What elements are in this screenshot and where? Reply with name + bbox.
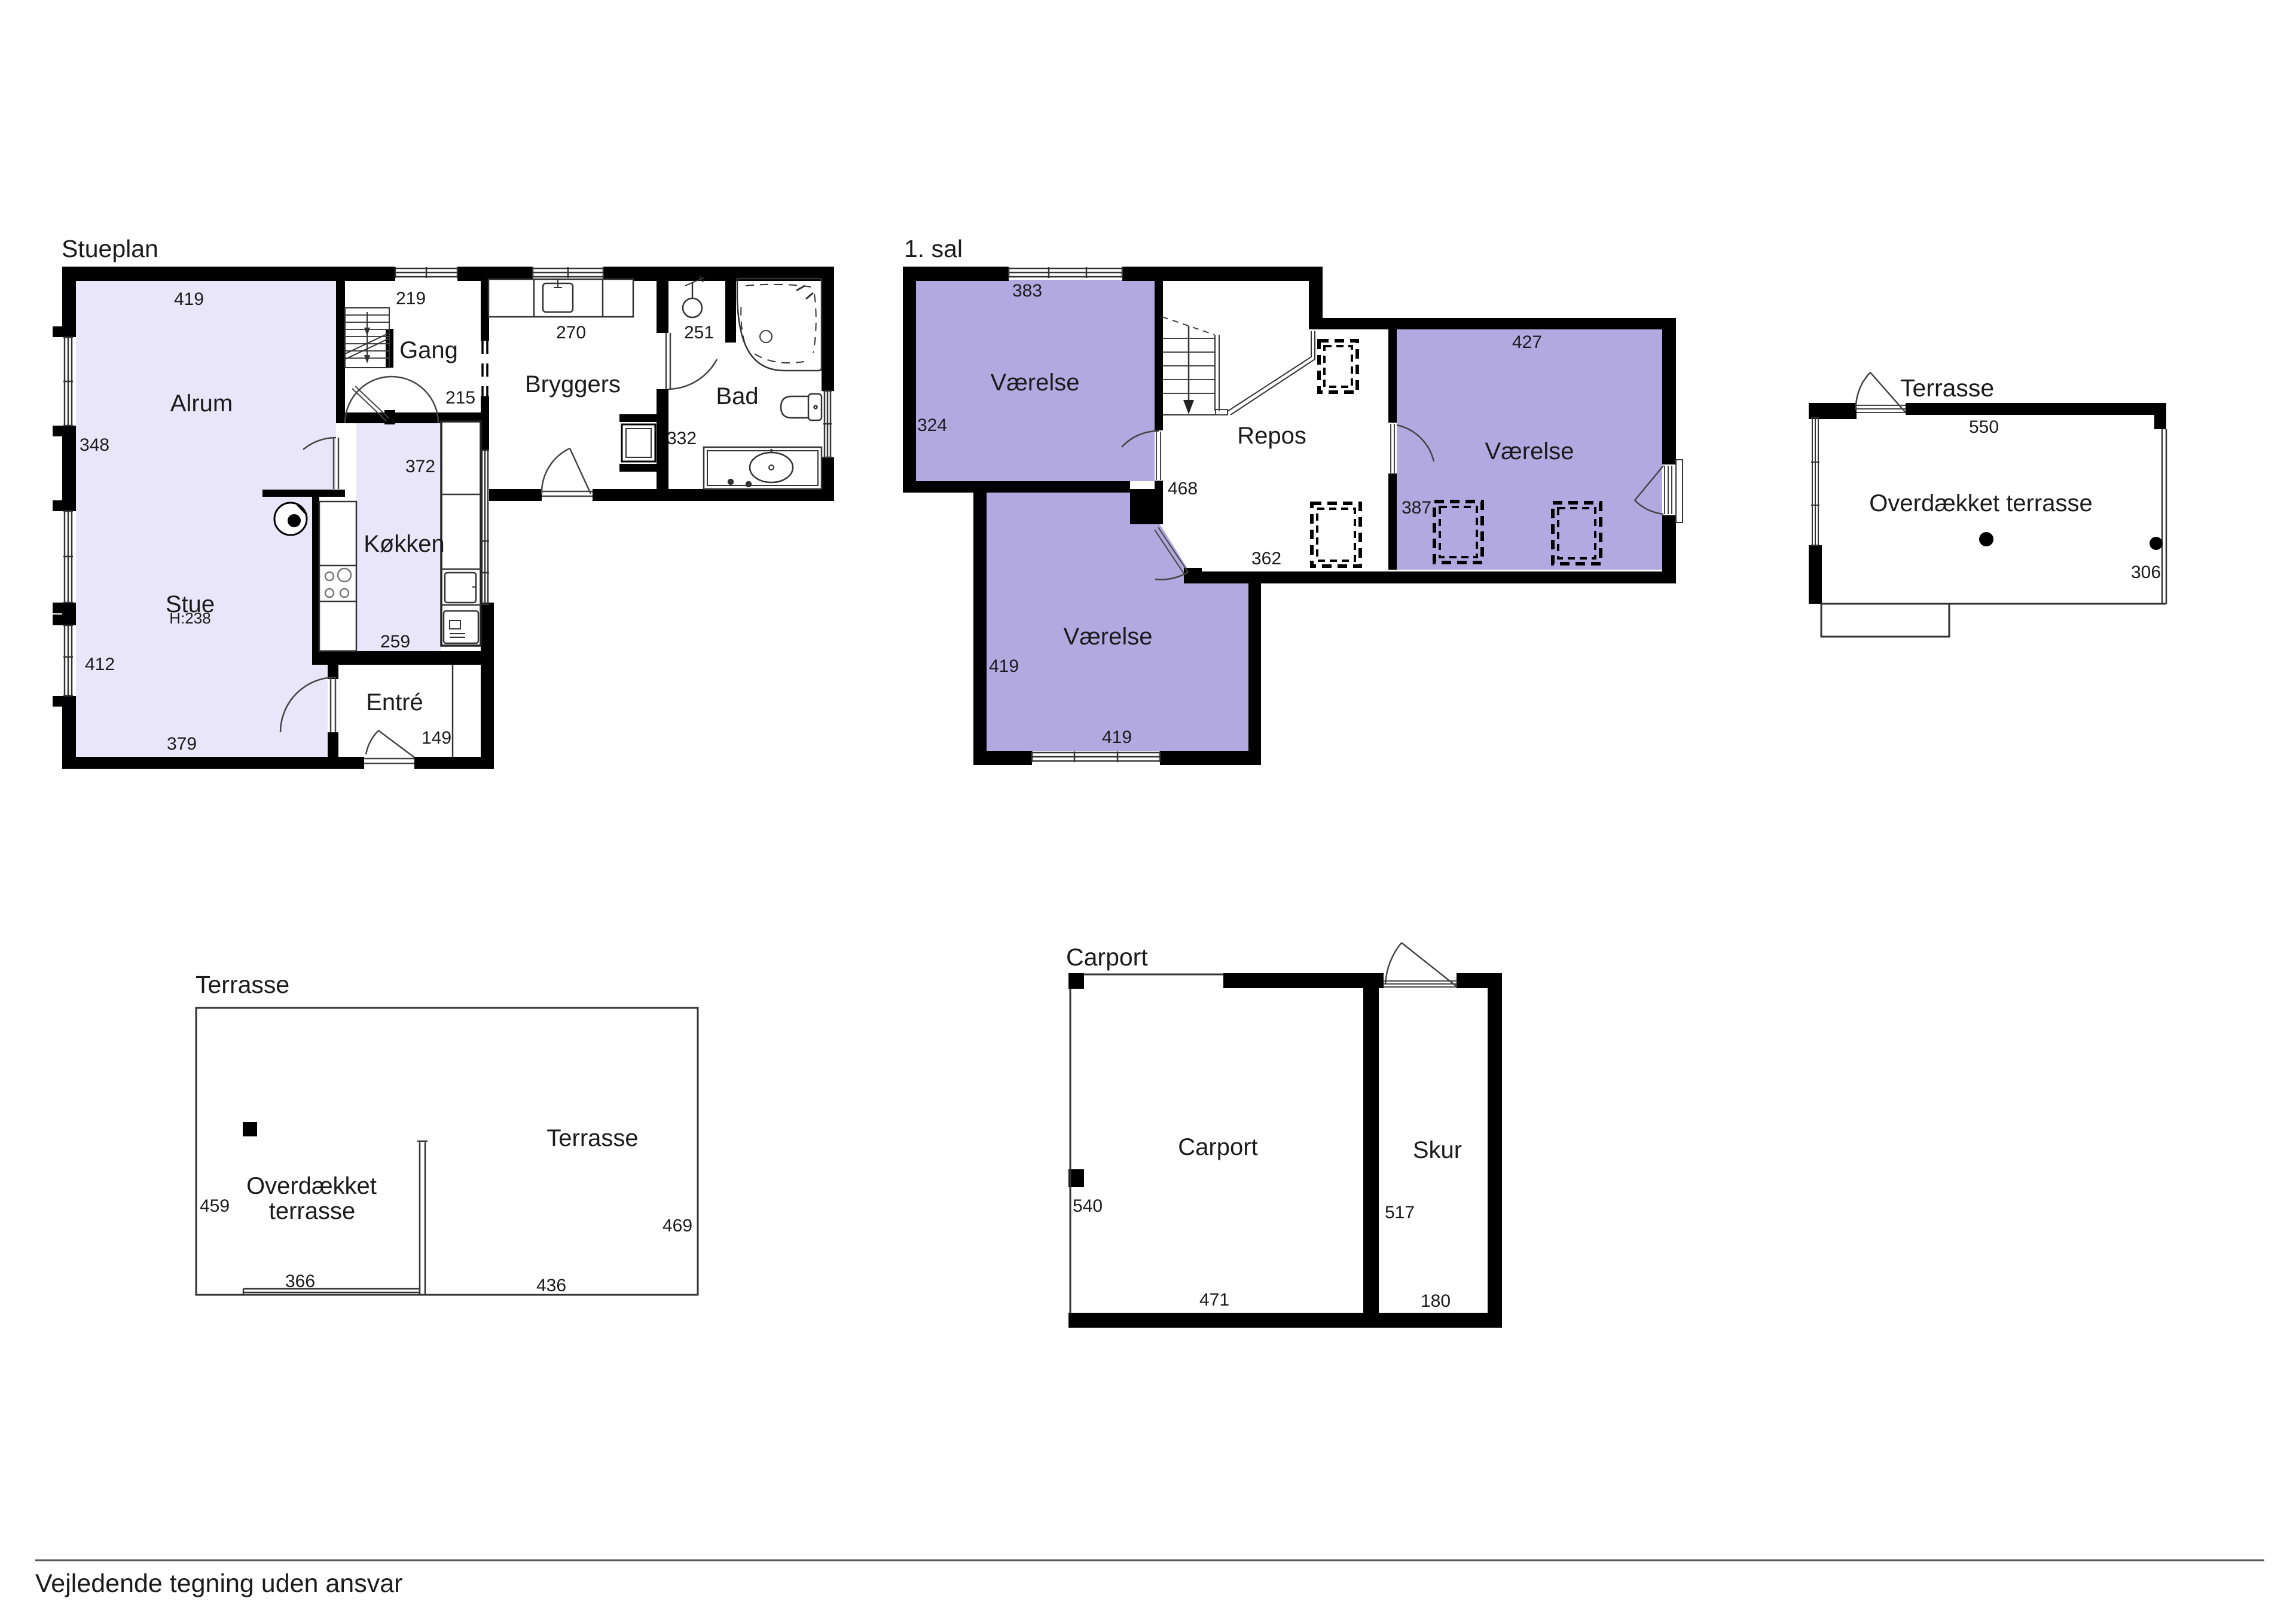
svg-text:180: 180 (1421, 1291, 1451, 1311)
svg-text:387: 387 (1402, 498, 1431, 518)
svg-text:Terrasse: Terrasse (546, 1125, 638, 1151)
svg-text:348: 348 (80, 435, 109, 455)
svg-text:324: 324 (917, 415, 947, 435)
svg-text:Carport: Carport (1178, 1134, 1257, 1160)
svg-text:332: 332 (667, 429, 697, 448)
svg-text:1. sal: 1. sal (904, 235, 963, 262)
svg-text:383: 383 (1012, 281, 1042, 301)
svg-text:Alrum: Alrum (170, 390, 233, 417)
svg-text:419: 419 (174, 289, 204, 309)
svg-text:Repos: Repos (1237, 423, 1306, 449)
svg-text:H:238: H:238 (169, 609, 210, 627)
svg-text:Vejledende tegning uden ansvar: Vejledende tegning uden ansvar (35, 1569, 402, 1598)
svg-text:471: 471 (1199, 1290, 1229, 1310)
svg-text:Køkken: Køkken (364, 531, 445, 557)
svg-text:Værelse: Værelse (1064, 623, 1153, 650)
svg-text:517: 517 (1385, 1203, 1415, 1222)
svg-text:412: 412 (85, 655, 115, 674)
svg-text:427: 427 (1512, 332, 1542, 352)
svg-text:251: 251 (684, 323, 714, 343)
svg-text:Overdækket: Overdækket (246, 1173, 377, 1199)
svg-text:Bad: Bad (716, 383, 758, 409)
svg-text:215: 215 (445, 388, 475, 408)
svg-text:Gang: Gang (399, 337, 458, 363)
svg-text:terrasse: terrasse (269, 1198, 356, 1224)
svg-text:372: 372 (405, 457, 435, 476)
svg-text:379: 379 (167, 734, 197, 754)
svg-text:219: 219 (396, 289, 426, 308)
svg-text:362: 362 (1251, 549, 1281, 568)
svg-text:Terrasse: Terrasse (196, 971, 289, 998)
svg-text:469: 469 (662, 1216, 692, 1236)
svg-text:259: 259 (380, 632, 410, 652)
svg-text:Entré: Entré (366, 689, 423, 716)
svg-text:419: 419 (989, 656, 1019, 676)
svg-text:306: 306 (2131, 563, 2161, 582)
svg-text:366: 366 (285, 1271, 315, 1291)
svg-text:Værelse: Værelse (991, 369, 1080, 396)
svg-text:459: 459 (200, 1196, 230, 1216)
svg-text:149: 149 (422, 728, 451, 748)
svg-text:Værelse: Værelse (1485, 438, 1574, 464)
svg-text:Bryggers: Bryggers (525, 371, 621, 398)
svg-text:550: 550 (1969, 417, 1999, 437)
svg-text:540: 540 (1073, 1196, 1103, 1216)
svg-text:Stueplan: Stueplan (62, 235, 158, 262)
svg-text:419: 419 (1102, 728, 1132, 747)
svg-text:Carport: Carport (1066, 943, 1148, 971)
svg-text:Skur: Skur (1413, 1137, 1462, 1163)
svg-text:436: 436 (536, 1276, 566, 1295)
svg-text:Terrasse: Terrasse (1900, 374, 1994, 402)
svg-text:270: 270 (556, 323, 586, 343)
svg-text:468: 468 (1168, 479, 1198, 499)
svg-text:Overdækket terrasse: Overdækket terrasse (1869, 490, 2092, 516)
